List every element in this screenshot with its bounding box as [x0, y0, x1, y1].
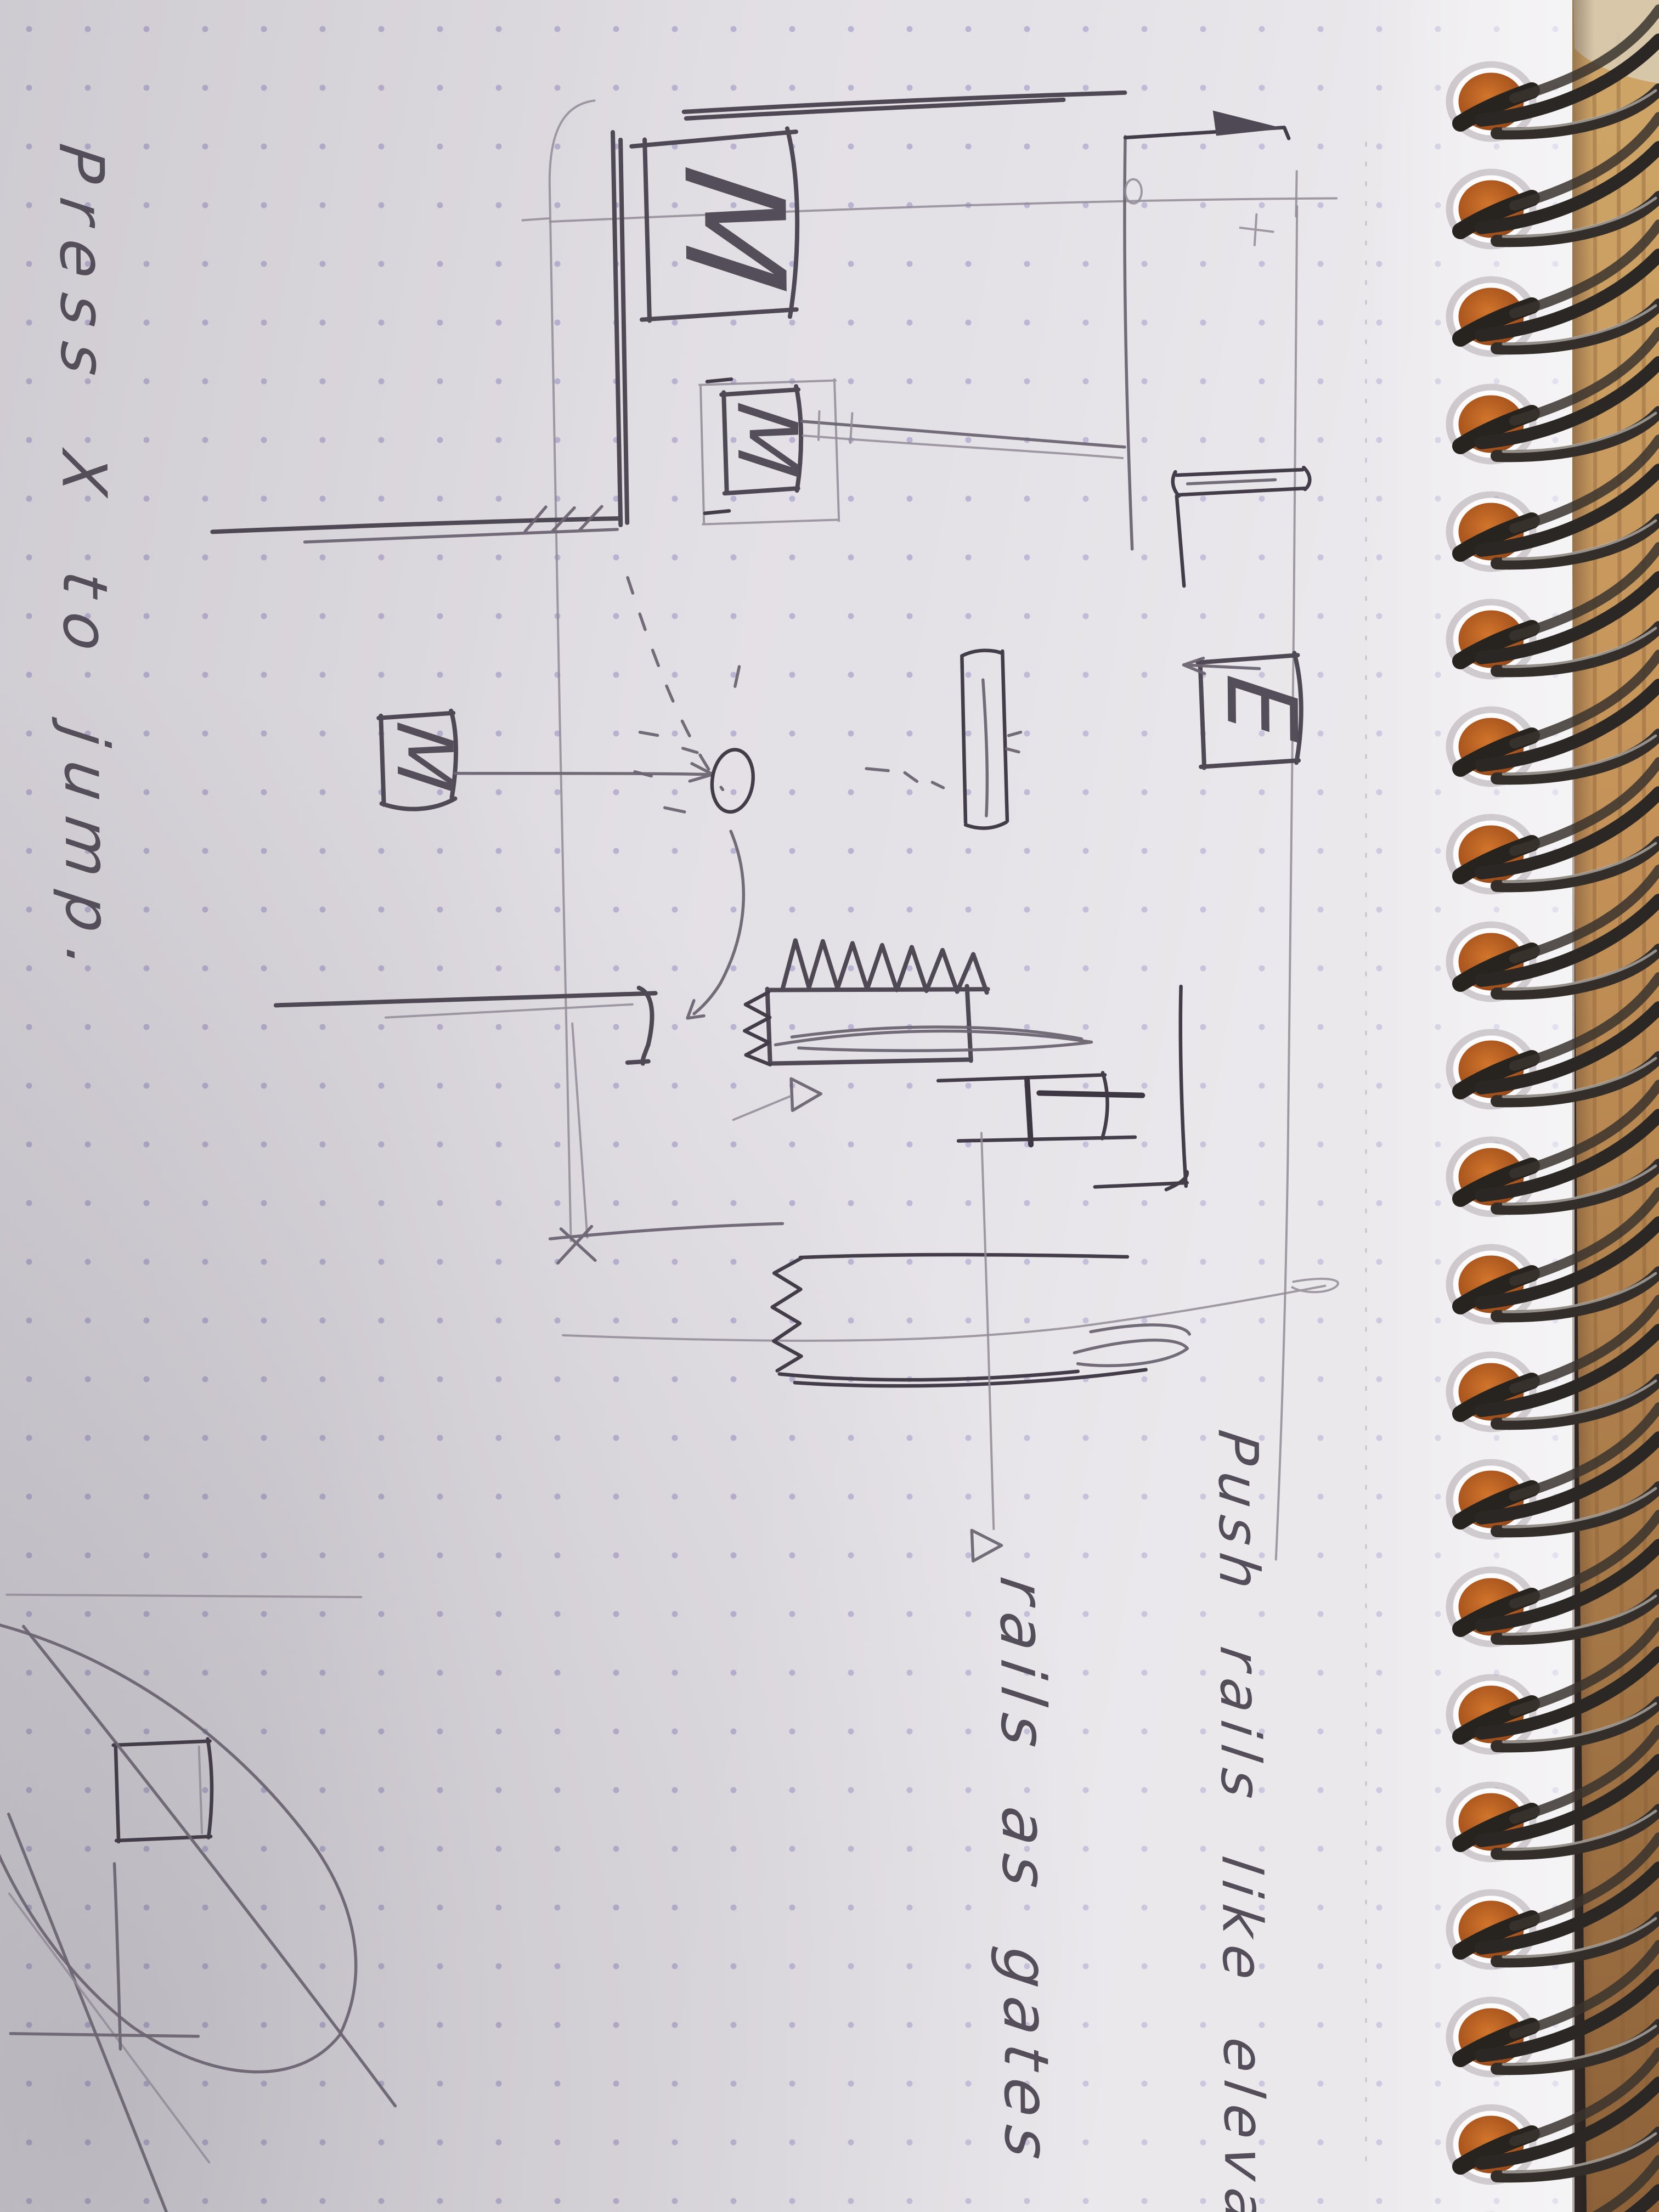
box-letter: E: [1205, 670, 1317, 760]
note-rails-as-gates: rails as gates: [986, 1573, 1063, 2172]
box-letter: M: [653, 159, 814, 313]
photo-canvas: M M: [0, 0, 1659, 2212]
notebook-photo: M M: [0, 0, 1659, 2212]
box-letter: M: [379, 718, 469, 810]
page-shadow-corner: [0, 0, 1575, 2212]
note-push-rails: Push rails like elevat: [1206, 1426, 1277, 2212]
note-press-x-to-jump: Press X to jump.: [45, 140, 124, 989]
box-letter: M: [718, 398, 815, 496]
page-edge-shadow: [1572, 0, 1594, 2212]
